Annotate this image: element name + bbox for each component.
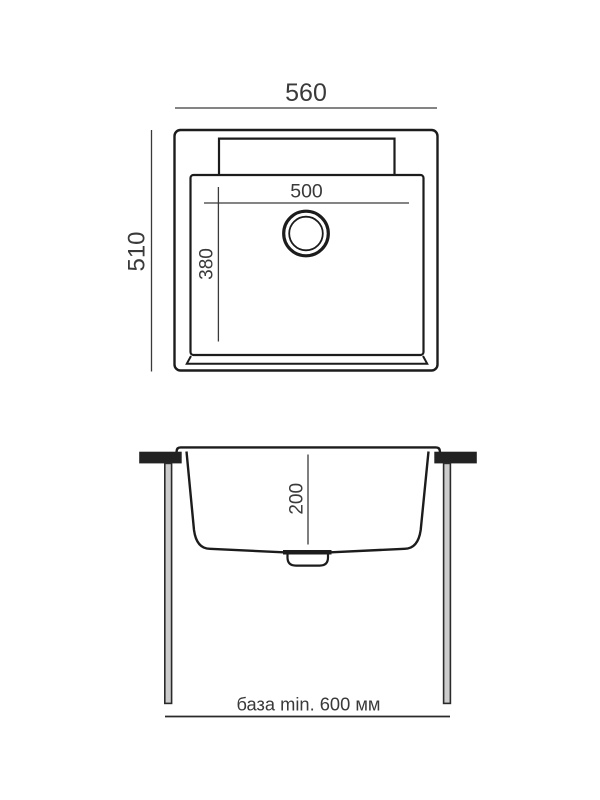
svg-text:380: 380 [197, 248, 218, 280]
svg-text:200: 200 [286, 483, 307, 515]
svg-text:500: 500 [290, 181, 323, 203]
svg-text:база min. 600 мм: база min. 600 мм [237, 694, 381, 715]
svg-text:560: 560 [285, 79, 327, 107]
svg-text:510: 510 [124, 231, 151, 271]
